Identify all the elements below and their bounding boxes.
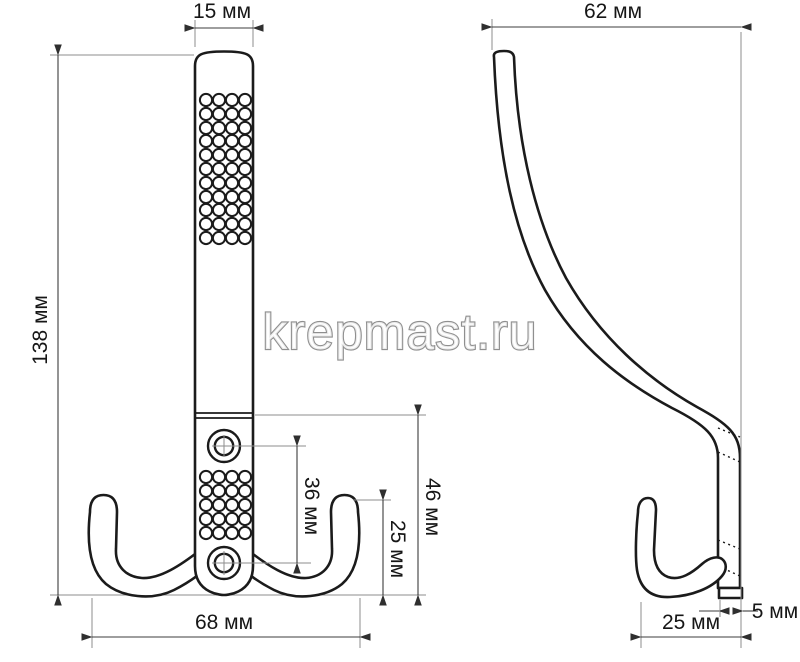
dim-label-base-section: 46 мм — [421, 478, 444, 536]
dimension-hole-spacing: 36 мм — [297, 446, 323, 563]
dimension-overall-width: 68 мм — [92, 598, 360, 648]
dimension-hook-height: 25 мм — [353, 500, 409, 595]
watermark-text: krepmast.ru — [263, 304, 538, 360]
technical-drawing-page: krepmast.ru 15 мм 138 мм 36 мм 25 мм — [0, 0, 800, 662]
dim-label-plate-thickness: 5 мм — [752, 600, 798, 623]
dim-label-overall-height: 138 мм — [29, 295, 52, 365]
dim-label-overall-width: 68 мм — [195, 611, 253, 634]
dim-label-hook-depth: 25 мм — [662, 611, 720, 634]
dimension-top-width: 15 мм — [193, 0, 253, 47]
dim-label-top-width: 15 мм — [193, 0, 251, 23]
dim-label-overall-depth: 62 мм — [584, 0, 642, 23]
dim-label-hook-height: 25 мм — [386, 520, 409, 578]
dimension-hook-depth: 25 мм — [641, 602, 741, 648]
side-lower-hook — [636, 498, 726, 597]
hook-technical-drawing: krepmast.ru 15 мм 138 мм 36 мм 25 мм — [0, 0, 800, 662]
dim-label-hole-spacing: 36 мм — [300, 477, 323, 535]
mounting-foot — [719, 588, 742, 598]
screw-hole-top — [208, 430, 306, 462]
